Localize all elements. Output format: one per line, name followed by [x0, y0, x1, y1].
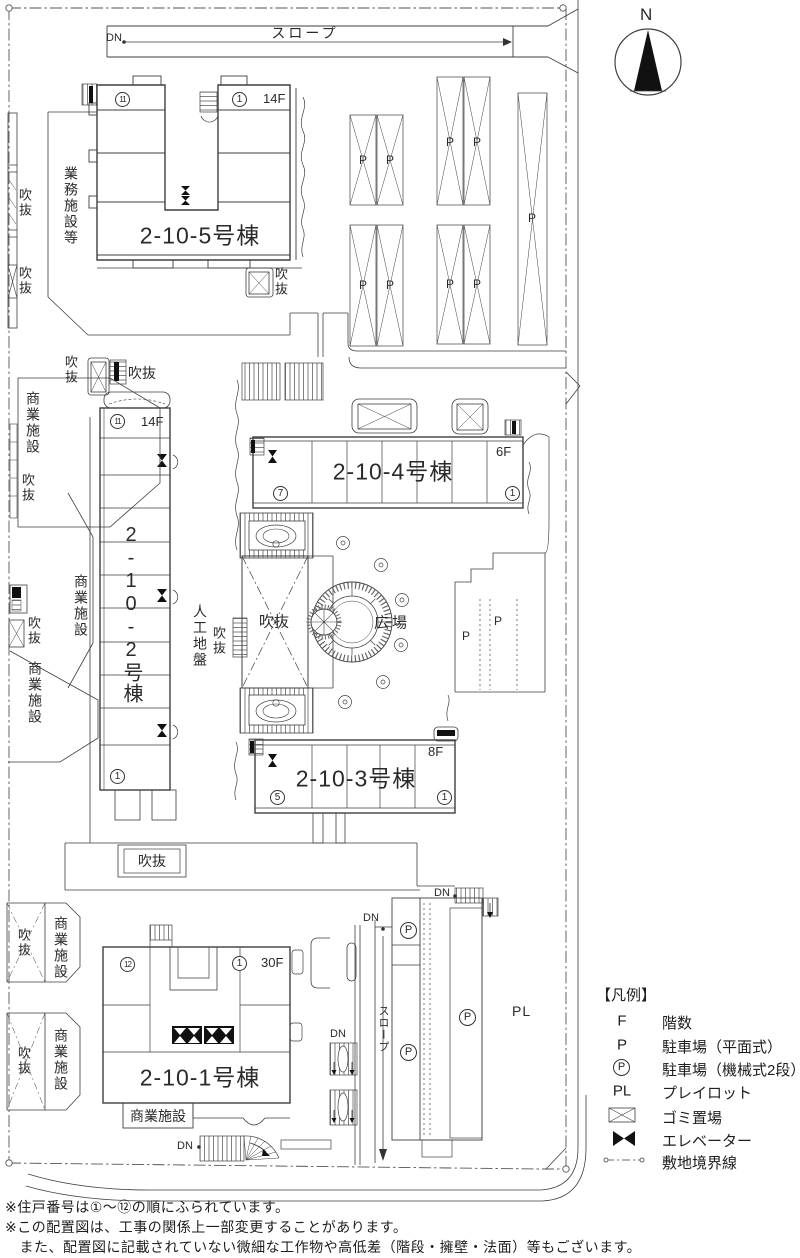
unit-number: 12	[120, 957, 135, 972]
footnote-2: ※この配置図は、工事の関係上一部変更することがあります。	[5, 1217, 407, 1237]
footnote-3: また、配置図に記載されていない微細な工作物や高低差（階段・擁壁・法面）等もござい…	[5, 1237, 641, 1257]
unit-number: 1	[437, 790, 452, 805]
boundary-icon	[604, 1158, 644, 1162]
parking-label: P	[386, 279, 394, 291]
void-label: 吹抜	[212, 626, 225, 656]
artificial-ground-label: 人工地盤	[193, 604, 207, 668]
floor-count: 30F	[261, 956, 283, 969]
floor-count: 14F	[263, 92, 285, 105]
legend-title: 【凡例】	[596, 984, 656, 1005]
floor-count: 8F	[428, 745, 443, 758]
dn-label: DN	[177, 1141, 193, 1152]
void-label: 吹抜	[17, 928, 30, 958]
elevator-icon	[268, 450, 277, 463]
parking-label: P	[462, 630, 470, 642]
legend-symbol-f: F	[617, 1013, 626, 1030]
unit-number: 11	[110, 414, 125, 429]
footnote-1: ※住戸番号は①～⑫の順にふられています。	[5, 1197, 289, 1217]
legend-label-elevator: エレベーター	[662, 1130, 752, 1151]
plaza-label: 広場	[374, 616, 410, 631]
stairs-icon	[200, 1136, 331, 1161]
stairs-icon	[455, 888, 498, 918]
legend-label-garbage: ゴミ置場	[662, 1107, 722, 1128]
mechanical-parking-symbol: P	[400, 1044, 417, 1061]
floor-count: 14F	[141, 415, 163, 428]
legend-symbols	[604, 1108, 644, 1162]
legend-label-boundary: 敷地境界線	[662, 1152, 737, 1173]
elevator-icon	[157, 454, 167, 737]
dn-label: DN	[330, 1029, 346, 1040]
garbage-icon	[609, 1108, 635, 1122]
commercial-label: 商業施設	[130, 1109, 186, 1123]
parking-label: P	[359, 154, 367, 166]
commercial-label: 商業施設	[74, 574, 88, 638]
void-label: 吹抜	[64, 355, 77, 385]
site-boundary-line	[9, 8, 566, 1169]
building-2-10-1	[103, 925, 356, 1161]
commercial-label: 商業施設	[54, 1028, 68, 1092]
void-label: 吹抜	[18, 266, 31, 296]
void-label: 吹抜	[17, 1046, 30, 1076]
north-label: N	[640, 6, 652, 23]
parking-flat-north	[350, 77, 547, 346]
unit-number: 1	[505, 486, 520, 501]
business-area-outline	[48, 112, 566, 368]
legend-label-floors: 階数	[662, 1012, 692, 1033]
void-label: 吹抜	[21, 473, 34, 503]
parking-label: P	[446, 136, 454, 148]
unit-number: 11	[115, 92, 130, 107]
void-label: 吹抜	[259, 615, 289, 630]
building-name-2-10-4: 2-10-4号棟	[333, 461, 453, 484]
unit-number: 5	[270, 790, 285, 805]
legend-label-parking-flat: 駐車場（平面式）	[662, 1036, 782, 1057]
parking-label: P	[386, 154, 394, 166]
floor-count: 6F	[496, 445, 511, 458]
building-name-2-10-2: 2-10-2号棟	[121, 524, 141, 704]
site-plan: N DN スロープ 11 1 14F 2-10-5号棟 業務施設等 吹抜 吹抜 …	[0, 0, 800, 1258]
playlot-label: PL	[512, 1004, 531, 1018]
slope-label-top: スロープ	[271, 26, 338, 40]
business-facility-label: 業務施設等	[64, 166, 78, 246]
commercial-label: 商業施設	[28, 661, 42, 725]
parking-label: P	[473, 136, 481, 148]
building-name-2-10-1: 2-10-1号棟	[140, 1067, 260, 1090]
south-walkway	[65, 843, 455, 890]
elevator-icon	[172, 1026, 234, 1044]
elevator-icon	[181, 186, 190, 205]
commercial-label: 商業施設	[26, 391, 40, 455]
dn-label: DN	[106, 33, 122, 44]
parking-label: P	[473, 278, 481, 290]
legend-symbol-pl: PL	[613, 1083, 631, 1100]
void-label: 吹抜	[27, 616, 40, 646]
stairs-icon	[330, 1043, 357, 1125]
legend-label-playlot: プレイロット	[662, 1082, 752, 1103]
dn-label: DN	[363, 913, 379, 924]
unit-number: 1	[232, 92, 247, 107]
parking-bay	[350, 77, 547, 346]
void-label: 吹抜	[138, 854, 166, 868]
legend-symbol-p: P	[617, 1037, 627, 1054]
elevator-icon	[613, 1131, 635, 1146]
commercial-label: 商業施設	[54, 916, 68, 980]
dn-label: DN	[434, 888, 450, 899]
legend-label-parking-mech: 駐車場（機械式2段）	[662, 1059, 800, 1080]
parking-label: P	[446, 278, 454, 290]
road-edges	[26, 0, 586, 1201]
void-label: 吹抜	[274, 267, 287, 297]
building-name-2-10-3: 2-10-3号棟	[296, 768, 416, 791]
parking-label: P	[494, 615, 502, 627]
slope-bank-line	[301, 97, 304, 257]
north-arrow	[615, 29, 681, 95]
parking-label: P	[359, 279, 367, 291]
unit-number: 7	[273, 486, 288, 501]
void-label: 吹抜	[18, 188, 31, 218]
unit-number: 1	[232, 956, 247, 971]
building-name-2-10-5: 2-10-5号棟	[140, 225, 260, 248]
parking-label: P	[528, 212, 536, 224]
mechanical-parking-symbol: P	[459, 1009, 476, 1026]
unit-number: 1	[110, 769, 125, 784]
mechanical-parking-symbol: P	[400, 922, 417, 939]
elevator-icon	[268, 754, 277, 767]
void-label: 吹抜	[128, 366, 156, 380]
slope-label-south: スロープ	[377, 1005, 388, 1053]
legend-symbol-circled-p: P	[613, 1059, 630, 1076]
